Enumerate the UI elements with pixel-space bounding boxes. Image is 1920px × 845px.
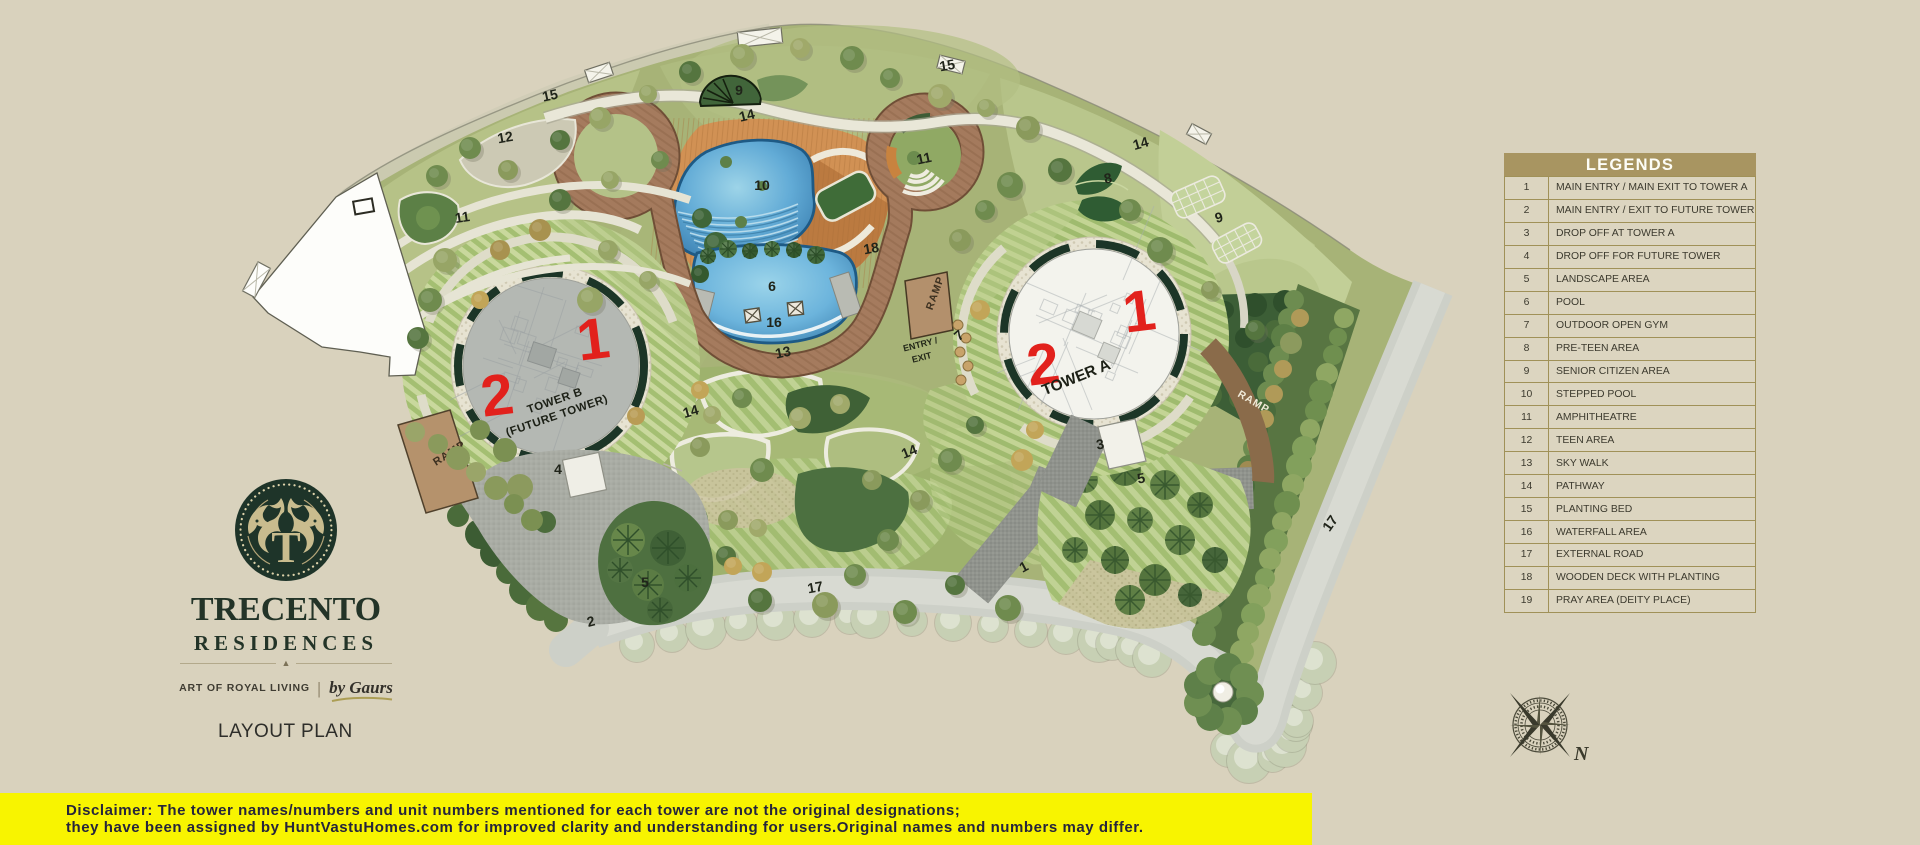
svg-text:12: 12 (496, 128, 514, 146)
svg-text:N: N (1573, 743, 1590, 765)
svg-text:5: 5 (641, 574, 649, 590)
svg-text:9: 9 (735, 82, 743, 98)
svg-text:T: T (271, 523, 300, 572)
svg-text:18: 18 (862, 239, 880, 257)
svg-text:10: 10 (754, 177, 770, 193)
svg-text:11: 11 (454, 208, 471, 226)
svg-text:15: 15 (938, 56, 956, 74)
svg-text:4: 4 (554, 461, 562, 477)
svg-text:16: 16 (766, 314, 782, 330)
svg-text:6: 6 (768, 278, 776, 294)
svg-text:17: 17 (806, 578, 824, 596)
